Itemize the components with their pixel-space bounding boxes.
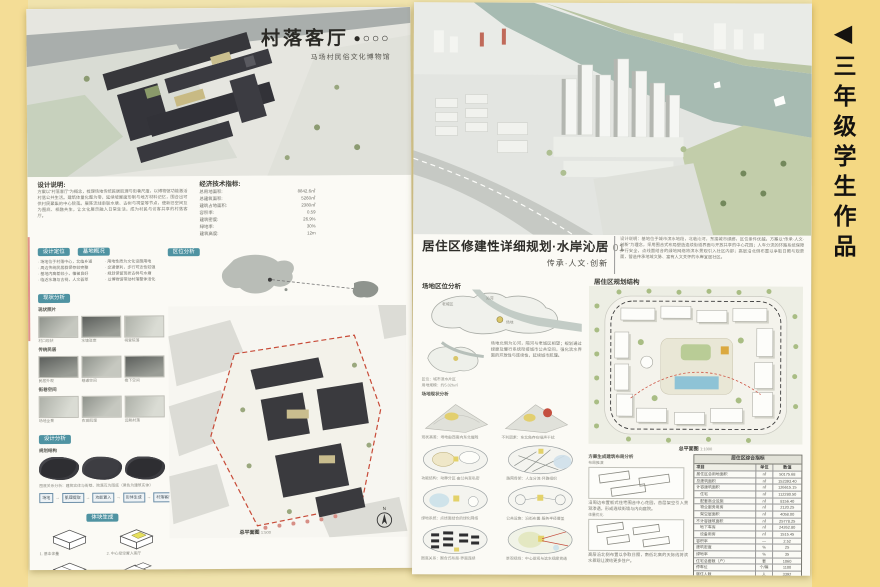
pill-analysis: 设计分析 — [39, 435, 71, 443]
cell-value: 24262.80 — [773, 525, 801, 531]
scheme-and-table-row: 方案生成建筑布局分析 布局推演 沿周边布置板式住宅围合中心花园，首层架空引入景观… — [588, 454, 803, 576]
scheme-sketch-1 — [588, 467, 684, 499]
cell-item: 绿地率 — [694, 551, 756, 557]
left-poster-analysis-column: 设计定位 基地概况 场地位于村落中心，北临乡道周边传统民居群保存较完整基地内高差… — [38, 247, 166, 570]
cell-unit: % — [756, 552, 773, 558]
location-bullets: 场地位于村落中心，北临乡道周边传统民居群保存较完整基地内高差较小，植被良好临近水… — [38, 259, 164, 284]
photo-row: 民居外观 巷道空间 檐下空间 — [38, 356, 164, 385]
indicator-table: 居住区综合指标 项目 单位 数值 居住区总用地面积 ㎡ 50175.68 总 — [693, 454, 803, 575]
axon-split-icon — [43, 559, 95, 570]
figure-ground-map — [39, 457, 79, 480]
terrain-caption: 不利因素：东北角存在噪声干扰 — [501, 435, 571, 441]
indicator-value: 5260㎡ — [301, 194, 315, 201]
table-row: 设备用房 ㎡ 1515.45 — [694, 530, 801, 537]
map-note: 场地北侧为沁河，隔河与老城区相望；规划通过绿廊及慢行系统衔接城市公共空间，强化滨… — [491, 341, 582, 360]
cell-unit: ㎡ — [756, 532, 773, 538]
flow-box: 功能置入 — [92, 492, 114, 502]
table-row: 不计容建筑面积 ㎡ 25778.25 — [694, 517, 801, 524]
indicator-value: 0.59 — [307, 209, 316, 216]
status-pill-row: 现状分析 — [38, 286, 164, 305]
table-row: 物业服务用房 ㎡ 2120.25 — [694, 504, 801, 511]
table-row: 容积率 — 2.52 — [694, 537, 801, 544]
indicator-value: 2380㎡ — [301, 202, 315, 209]
cell-item: 居住区总用地面积 — [694, 471, 756, 477]
plan-label: 总平面图 — [239, 530, 259, 536]
bubble-caption: 图底关系：围合式布局·界面连续 — [421, 556, 496, 562]
indicator-table-header: 项目 单位 数值 — [694, 464, 801, 470]
plan-scale: 1:500 — [261, 530, 271, 535]
table-row: 架空层面积 ㎡ 4058.00 — [694, 510, 801, 517]
pill-row: 设计定位 基地概况 — [38, 247, 164, 256]
cell-item: 居住人数 — [694, 571, 756, 575]
cell-item: 架空层面积 — [694, 511, 756, 517]
plan-caption: 总平面图 1:500 — [239, 529, 270, 536]
cell-item: 住宅总套数（户） — [694, 558, 756, 564]
cell-value: 2.52 — [773, 538, 801, 544]
left-poster-title-block: 村落客厅 ●○○○ 马场村民俗文化博物馆 — [261, 23, 391, 63]
table-row: 居住区总用地面积 ㎡ 50175.68 — [694, 470, 801, 477]
table-row: 住宅总套数（户） 套 1060 — [694, 557, 801, 564]
cell-item: 建筑密度 — [694, 545, 756, 551]
photo-caption: 远眺村落 — [125, 418, 165, 424]
cell-item: 容积率 — [694, 538, 756, 544]
design-intro-paragraph: 设计说明：基地位于城市滨水地段，北临沁河，东接城市绿廊，区位条件优越。方案以“传… — [614, 236, 804, 275]
photo-row-label: 传统民居 — [38, 347, 164, 354]
scheme-step-note: 沿周边布置板式住宅围合中心花园，首层架空引入景观渗透，形成连续街墙与内向庭院。 — [588, 500, 688, 513]
region-map-large: 沁河 老城区 场地 — [422, 289, 582, 338]
road-network-icon — [506, 444, 576, 476]
indicator-label: 建筑密度: — [200, 216, 219, 223]
cell-unit: 人 — [756, 571, 773, 575]
left-poster-subtitle: 马场村民俗文化博物馆 — [261, 52, 391, 63]
indicator-label: 建筑占地面积: — [199, 202, 227, 209]
tech-indicator-list: 总用地面积: 8842.6㎡ 总建筑面积: 5260㎡ 建筑占地面积: 2380… — [199, 187, 315, 237]
right-poster-board: 居住区修建性详细规划·水岸沁居01 传承·人文·创新 设计说明：基地位于城市滨水… — [412, 2, 812, 575]
table-row: 地下车库 ㎡ 24262.80 — [694, 524, 801, 531]
right-poster-analysis-column: 沁河 老城区 场地 区位：城市滨水片区 用地规模：约5.02h㎡ 场地北侧为沁河… — [421, 289, 582, 562]
flow-arrow: → — [116, 495, 121, 500]
scheme-step-label: 体量优化 — [588, 512, 688, 518]
right-poster-title-row: 居住区修建性详细规划·水岸沁居01 传承·人文·创新 设计说明：基地位于城市滨水… — [422, 235, 804, 274]
table-row: 计容建筑面积 ㎡ 126615.15 — [694, 484, 801, 491]
residential-masterplan — [588, 286, 803, 445]
cell-unit: ㎡ — [756, 485, 773, 491]
tech-indicators: 经济技术指标: 总用地面积: 8842.6㎡ 总建筑面积: 5260㎡ 建筑占地… — [199, 177, 315, 237]
location-map-row: 区位分析 — [168, 245, 406, 306]
bubble-diagram: 公共设施：沿街布置·服务半径覆盖 — [506, 484, 581, 522]
terrain-diagram: 不利因素：东北角存在噪声干扰 — [501, 401, 571, 441]
photo-caption: 檐下空间 — [125, 378, 165, 384]
map-label-oldtown: 老城区 — [442, 301, 453, 307]
figure-ground-map — [82, 457, 122, 480]
bubble-caption: 景观视线：中心景观与滨水视廊贯通 — [506, 556, 581, 562]
table-row: 建筑密度 % 25 — [694, 544, 801, 551]
flow-item: → 功能置入 — [86, 492, 115, 502]
photo-caption: 民居外观 — [39, 378, 79, 384]
flow-item: → 场地 — [39, 493, 53, 503]
cell-unit: 套 — [756, 558, 773, 564]
site-photo — [82, 396, 122, 418]
photo-caption: 水塘驳岸 — [81, 338, 121, 344]
axon-shift-icon — [110, 559, 162, 570]
photo-row: 村口现状 水塘驳岸 祠堂院落 — [38, 316, 164, 345]
indicator-value: 30% — [307, 223, 316, 230]
cell-unit: 个/辆 — [756, 565, 773, 571]
compass-icon — [375, 511, 393, 529]
china-map-icon — [182, 249, 392, 304]
indicator-row: 建筑高度: 12m — [200, 230, 316, 238]
flow-item: → 肌理提取 — [55, 492, 84, 502]
bubble-diagram: 景观视线：中心景观与滨水视廊贯通 — [506, 524, 581, 562]
cell-value: 152393.40 — [773, 478, 801, 484]
village-aerial-render: 村落客厅 ●○○○ 马场村民俗文化博物馆 — [26, 7, 411, 177]
cell-item: 配套商业设施 — [694, 498, 756, 504]
bubble-caption: 绿地系统：点线面结合的绿化网络 — [421, 516, 496, 522]
side-tab-label: 三年级学生作品 — [826, 54, 860, 264]
indicator-value: 12m — [307, 230, 316, 237]
bubble-caption: 功能结构：动静分区·由公共至私密 — [421, 476, 496, 482]
title-text: 村落客厅 — [261, 28, 349, 50]
table-row: 总建筑面积 ㎡ 152393.40 — [694, 477, 801, 484]
cell-item: 总建筑面积 — [694, 478, 756, 484]
bubble-diagram: 图底关系：围合式布局·界面连续 — [421, 524, 496, 562]
analysis-caption: 规划结构 — [39, 448, 165, 455]
axon-box-courtyard-icon — [110, 526, 162, 550]
scheme-sketch-2 — [588, 519, 684, 551]
flow-box: 场地 — [39, 493, 53, 503]
axon-caption: 2. 中心挖空置入客厅 — [107, 550, 166, 556]
site-photo — [38, 316, 78, 338]
design-notes: 设计说明: 方案以“村落客厅”为概念，梳理场地传统民居肌理与街巷尺度，以博物馆功… — [37, 178, 187, 238]
cell-unit: — — [756, 538, 773, 544]
axon-caption: 1. 基本体量 — [40, 550, 99, 556]
figure-ground-icon — [421, 524, 491, 556]
cell-value: 3392 — [773, 572, 801, 576]
left-poster-title: 村落客厅 ●○○○ — [261, 23, 391, 51]
flow-arrow: → — [86, 495, 91, 500]
cell-item: 设备用房 — [694, 531, 756, 537]
cell-unit: ㎡ — [756, 478, 773, 484]
indicator-label: 建筑高度: — [200, 230, 219, 237]
bubble-diagram: 功能结构：动静分区·由公共至私密 — [421, 444, 496, 482]
pill-positioning: 设计定位 — [38, 248, 70, 256]
region-map-drawing — [422, 289, 582, 338]
figure-ground-maps — [39, 457, 165, 481]
cell-value: 25778.25 — [773, 518, 801, 524]
header-item: 项目 — [694, 464, 756, 470]
plan-scale: 1:1000 — [700, 446, 712, 451]
photo-caption: 祠堂院落 — [124, 338, 164, 344]
bubble-caption: 路网骨架：人车分流·环路组织 — [506, 476, 581, 482]
figure-ground-map — [125, 457, 165, 480]
cell-value: 1100 — [773, 565, 801, 571]
photo-row-label: 街巷空间 — [39, 387, 165, 394]
bullet-item: 以博物馆带动村落整体活化 — [105, 277, 164, 283]
side-tab: ◀ 三年级学生作品 — [822, 22, 864, 264]
left-triangle-icon: ◀ — [834, 22, 852, 46]
photo-row: 场地全景 农田肌理 远眺村落 — [39, 396, 165, 425]
pill-site: 基地概况 — [78, 248, 110, 256]
map-meta-2: 用地规模：约5.02h㎡ — [422, 382, 486, 388]
cell-item: 停车位 — [694, 565, 756, 571]
right-poster-subtitle: 传承·人文·创新 — [422, 257, 608, 269]
table-row: 居住人数 人 3392 — [694, 570, 801, 575]
cell-unit: ㎡ — [756, 505, 773, 511]
site-photo — [124, 316, 164, 338]
table-row: 停车位 个/辆 1100 — [694, 564, 801, 571]
cell-item: 物业服务用房 — [694, 505, 756, 511]
public-facility-icon — [506, 484, 576, 516]
cell-unit: ㎡ — [756, 525, 773, 531]
flow-arrow: → — [55, 495, 60, 500]
site-photo — [124, 356, 164, 378]
cell-item: 计容建筑面积 — [694, 485, 756, 491]
cell-value: 25 — [773, 545, 801, 551]
massing-step: 2. 中心挖空置入客厅 — [106, 526, 165, 556]
tech-indicators-heading: 经济技术指标: — [199, 177, 315, 188]
design-notes-body: 方案以“村落客厅”为概念，梳理场地传统民居肌理与街巷尺度，以博物馆功能激活村落公… — [37, 188, 187, 219]
view-corridor-icon — [506, 524, 576, 556]
plan-label: 总平面图 — [679, 446, 699, 452]
cell-item: 不计容建筑面积 — [694, 518, 756, 524]
massing-step: 1. 基本体量 — [39, 526, 98, 556]
right-poster-title: 居住区修建性详细规划·水岸沁居01 — [422, 235, 608, 255]
status-caption: 现状照片 — [38, 307, 164, 314]
north-compass: N — [375, 506, 393, 529]
section-label-right: 居住区规划结构 — [594, 276, 640, 286]
massing-diagram-grid: 1. 基本体量 2. 中心挖空置入客厅 3. 切分体量呼应肌理 4. 体量错动引… — [39, 526, 166, 570]
flow-item: → 形体生成 — [116, 492, 145, 502]
terrain-diagram: 现状高差：场地由西南向东北缓降 — [421, 400, 491, 440]
terrain-analysis-row: 现状高差：场地由西南向东北缓降 不利因素：东北角存在噪声干扰 — [421, 400, 581, 441]
cell-value: 112280.50 — [773, 492, 801, 498]
region-map-small-drawing — [422, 340, 486, 376]
cell-value: 1060 — [773, 558, 801, 564]
cell-value: 50175.68 — [773, 472, 801, 478]
map-label-river: 沁河 — [486, 296, 494, 302]
site-status-label: 场地现状分析 — [422, 391, 582, 398]
right-poster-title-block: 居住区修建性详细规划·水岸沁居01 传承·人文·创新 — [422, 235, 608, 274]
masterplan-caption: 总平面图 1:1000 — [588, 445, 802, 453]
header-value: 数值 — [773, 465, 801, 471]
cell-unit: ㎡ — [756, 472, 773, 478]
site-photo — [81, 356, 121, 378]
scheme-step-label: 布局推演 — [588, 460, 688, 466]
pill-status: 现状分析 — [38, 294, 70, 302]
massing-step: 4. 体量错动引入光线 — [107, 559, 166, 570]
bullet-item: 临近水塘与古祠，人文荟萃 — [38, 277, 97, 283]
function-structure-icon — [421, 444, 491, 476]
analysis-pill-row: 设计分析 — [39, 427, 165, 446]
table-row: 住宅 ㎡ 112280.50 — [694, 490, 801, 497]
cell-item: 住宅 — [694, 491, 756, 497]
site-photo — [38, 356, 78, 378]
site-photo — [125, 396, 165, 418]
indicator-table-body: 居住区总用地面积 ㎡ 50175.68 总建筑面积 ㎡ 152393.40 计容… — [694, 470, 801, 575]
cell-unit: ㎡ — [756, 518, 773, 524]
site-photo — [39, 396, 79, 418]
photo-caption: 场地全景 — [39, 418, 79, 424]
village-siteplan: 总平面图 1:500 N — [168, 305, 407, 538]
left-poster-board: 村落客厅 ●○○○ 马场村民俗文化博物馆 设计说明: 方案以“村落客厅”为概念，… — [26, 7, 413, 570]
site-photo — [81, 316, 121, 338]
title-dots: ●○○○ — [353, 31, 390, 45]
cell-value: 35 — [773, 552, 801, 558]
photo-caption: 村口现状 — [38, 338, 78, 344]
region-map-small: 区位：城市滨水片区 用地规模：约5.02h㎡ — [422, 340, 486, 388]
table-row: 配套商业设施 ㎡ 8156.40 — [694, 497, 801, 504]
cell-unit: ㎡ — [756, 492, 773, 498]
cell-value: 4058.00 — [773, 512, 801, 518]
cell-unit: ㎡ — [756, 498, 773, 504]
region-map-small-row: 区位：城市滨水片区 用地规模：约5.02h㎡ 场地北侧为沁河，隔河与老城区相望；… — [422, 340, 582, 389]
massing-step: 3. 切分体量呼应肌理 — [40, 559, 99, 570]
city-aerial-photo — [413, 2, 812, 235]
scanned-page: 村落客厅 ●○○○ 马场村民俗文化博物馆 设计说明: 方案以“村落客厅”为概念，… — [0, 0, 880, 587]
terrain-diagram-icon — [501, 401, 571, 435]
bubble-diagram: 路网骨架：人车分流·环路组织 — [506, 444, 581, 482]
right-poster-plan-column: 总平面图 1:1000 方案生成建筑布局分析 布局推演 沿周边布置板式住宅围合中… — [588, 286, 803, 576]
left-poster-text-band: 设计说明: 方案以“村落客厅”为概念，梳理场地传统民居肌理与街巷尺度，以博物馆功… — [37, 177, 337, 238]
cell-value: 126615.15 — [773, 485, 801, 491]
scheme-step-note: 高层沿北侧布置以争取日照，南低北高的天际线将滨水景观让渡给更多住户。 — [588, 552, 688, 565]
flow-box: 形体生成 — [123, 492, 145, 502]
concept-flow-diagram: → 场地 → 肌理提取 → 功能置入 → 形体生成 → 村落客厅 — [39, 492, 165, 503]
green-system-icon — [421, 484, 491, 516]
village-siteplan-drawing — [168, 305, 407, 538]
bubble-diagram: 绿地系统：点线面结合的绿化网络 — [421, 484, 496, 522]
pill-massing: 体块生成 — [86, 513, 118, 521]
analysis-note: 图底关系分析：建筑实体与街巷、院落互为图底（黑色为建筑实体） — [39, 483, 165, 490]
left-poster-plan-column: 区位分析 — [168, 245, 408, 563]
scheme-generation: 方案生成建筑布局分析 布局推演 沿周边布置板式住宅围合中心花园，首层架空引入景观… — [588, 454, 689, 576]
massing-pill-row: 体块生成 — [39, 505, 165, 524]
cell-item: 地下车库 — [694, 525, 756, 531]
cell-unit: ㎡ — [756, 512, 773, 518]
cell-value: 8156.40 — [773, 498, 801, 504]
terrain-diagram-icon — [421, 400, 491, 434]
flow-arrow: → — [147, 494, 152, 499]
terrain-caption: 现状高差：场地由西南向东北缓降 — [421, 434, 491, 440]
table-row: 绿地率 % 35 — [694, 550, 801, 557]
photo-caption: 农田肌理 — [82, 418, 122, 424]
cell-value: 2120.25 — [773, 505, 801, 511]
cell-value: 1515.45 — [773, 532, 801, 538]
header-unit: 单位 — [756, 465, 773, 471]
cell-unit: % — [756, 545, 773, 551]
photo-caption: 巷道空间 — [82, 378, 122, 384]
bubble-diagram-grid: 功能结构：动静分区·由公共至私密 路网骨架：人车分流·环路组织 绿地系统：点线面… — [421, 444, 581, 563]
bubble-caption: 公共设施：沿街布置·服务半径覆盖 — [506, 516, 581, 522]
title-text: 居住区修建性详细规划·水岸沁居 — [422, 239, 609, 254]
left-edge-pink-strip — [26, 237, 30, 341]
flow-box: 肌理提取 — [62, 492, 84, 502]
axon-box-icon — [43, 526, 95, 550]
indicator-table-title: 居住区综合指标 — [694, 455, 801, 465]
map-label-site: 场地 — [506, 320, 514, 326]
